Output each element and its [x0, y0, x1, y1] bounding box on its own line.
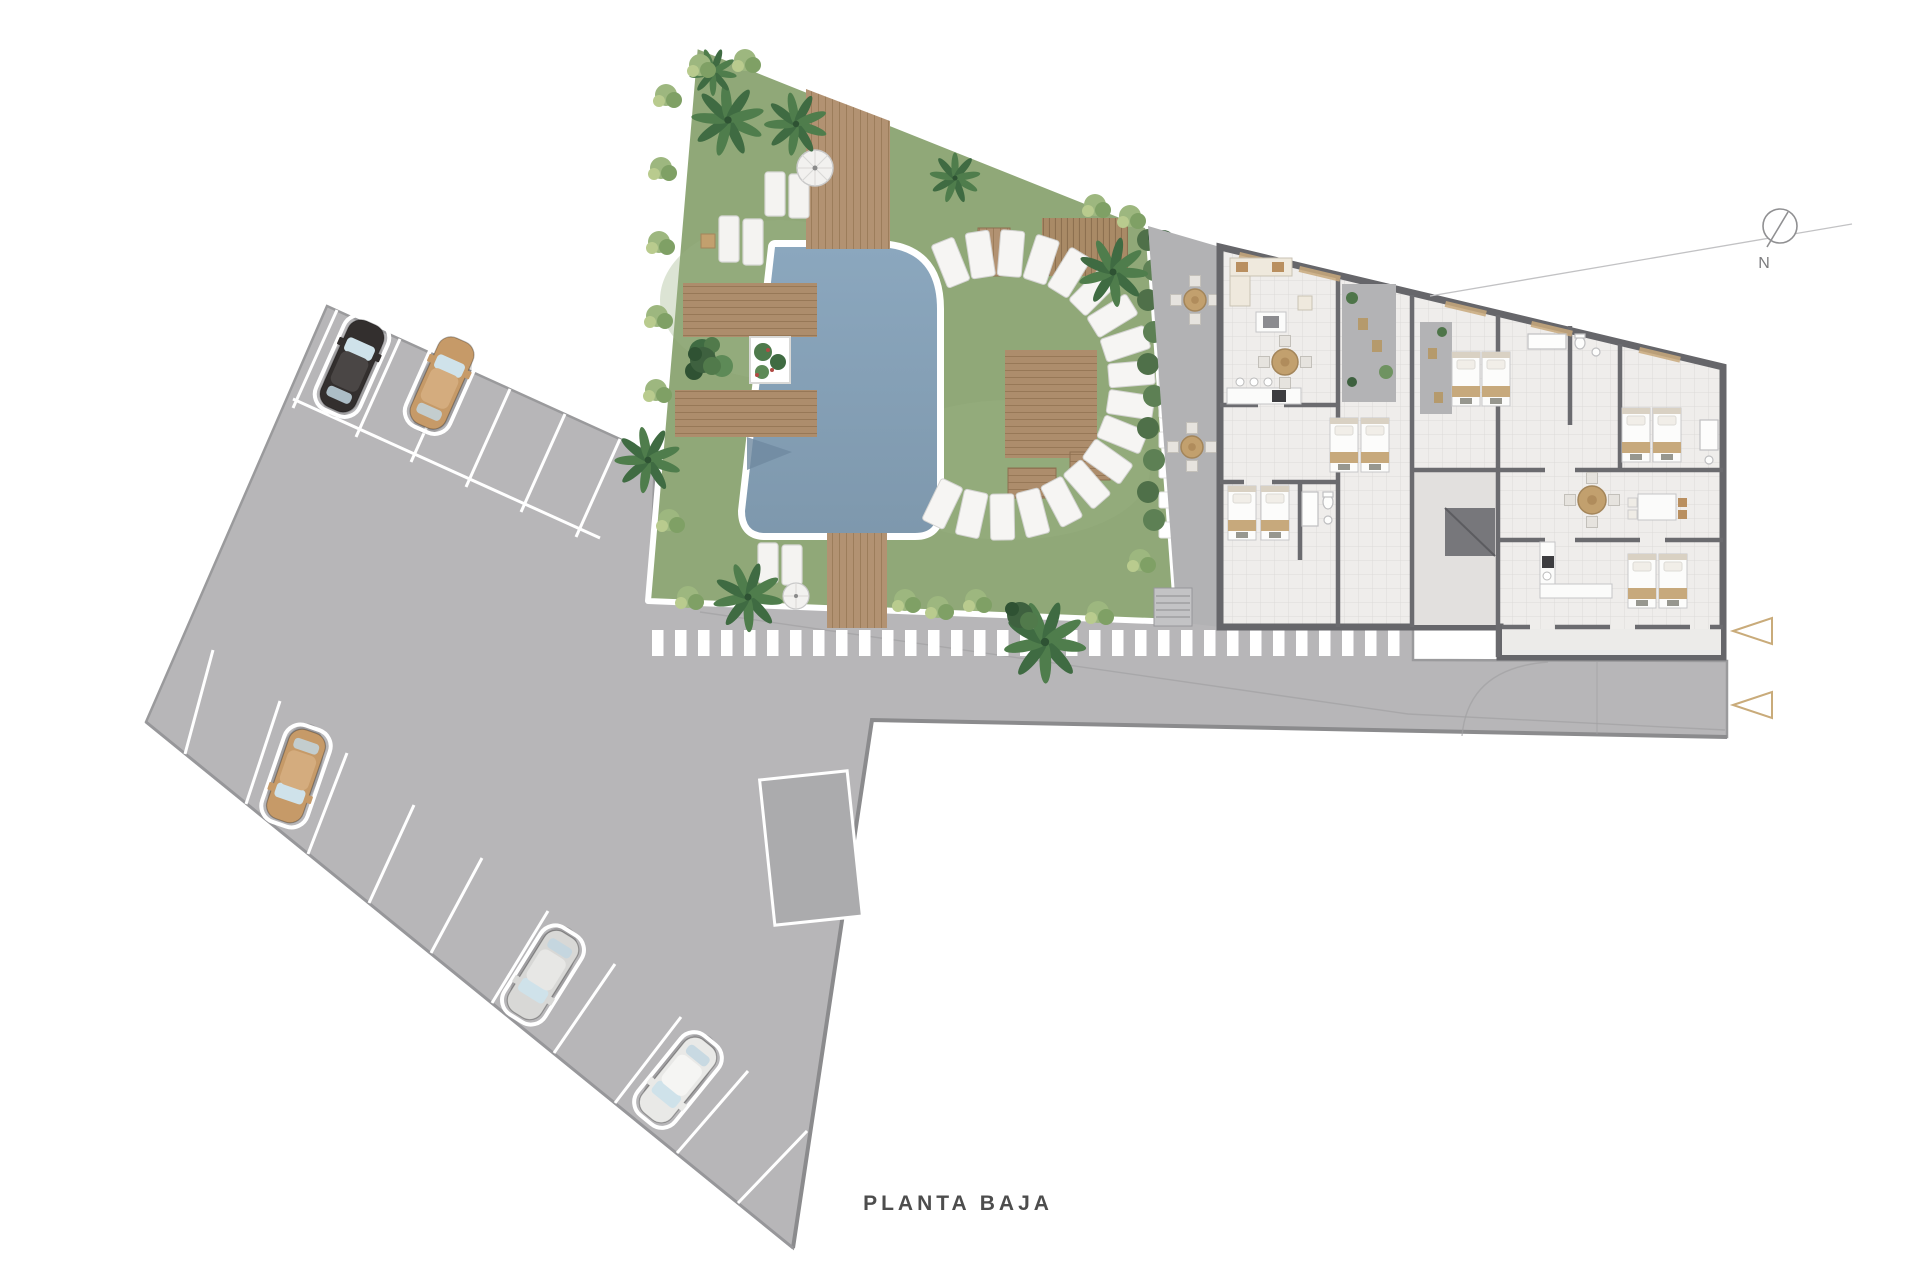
bed	[1653, 408, 1681, 462]
floor-plan-canvas: N PLANTA BAJA	[0, 0, 1920, 1280]
bush-icon	[1082, 194, 1111, 218]
inner-patio	[1342, 284, 1396, 402]
road-curb	[793, 720, 1727, 1248]
planter-box	[750, 337, 790, 383]
bush-icon	[732, 49, 761, 73]
deck-bar-lower	[675, 390, 817, 437]
entrance-arrows	[1733, 618, 1772, 718]
north-label: N	[1758, 255, 1770, 272]
entrance-arrow-icon	[1733, 618, 1772, 644]
bush-icon	[648, 157, 677, 181]
plan-title: PLANTA BAJA	[863, 1192, 1053, 1215]
storage-block	[1445, 508, 1495, 556]
bed	[1482, 352, 1510, 406]
bed	[1659, 554, 1687, 608]
inner-patio	[1420, 322, 1452, 414]
marked-parking-bay	[760, 771, 863, 925]
entrance-arrow-icon	[1733, 692, 1772, 718]
side-table	[701, 234, 715, 248]
entrance-stairs	[1154, 588, 1192, 626]
bush-icon	[1117, 205, 1146, 229]
deck-bar-upper	[683, 283, 817, 337]
bed	[1330, 418, 1358, 472]
parasol-small	[783, 583, 809, 609]
bed	[1622, 408, 1650, 462]
bed	[1628, 554, 1656, 608]
bush-icon	[646, 231, 675, 255]
bed	[1361, 418, 1389, 472]
parasol-large	[797, 150, 833, 186]
bed	[1261, 486, 1289, 540]
compass-icon: N	[1758, 209, 1797, 272]
porch-walkway	[1502, 629, 1721, 655]
bush-icon	[653, 84, 682, 108]
bed	[1452, 352, 1480, 406]
garden-area	[614, 45, 1185, 684]
deck-below-pool	[827, 533, 887, 628]
bed	[1228, 486, 1256, 540]
building	[1220, 247, 1723, 657]
garden-platform	[1005, 350, 1097, 458]
site-plan-drawing: N PLANTA BAJA	[0, 0, 1920, 1280]
